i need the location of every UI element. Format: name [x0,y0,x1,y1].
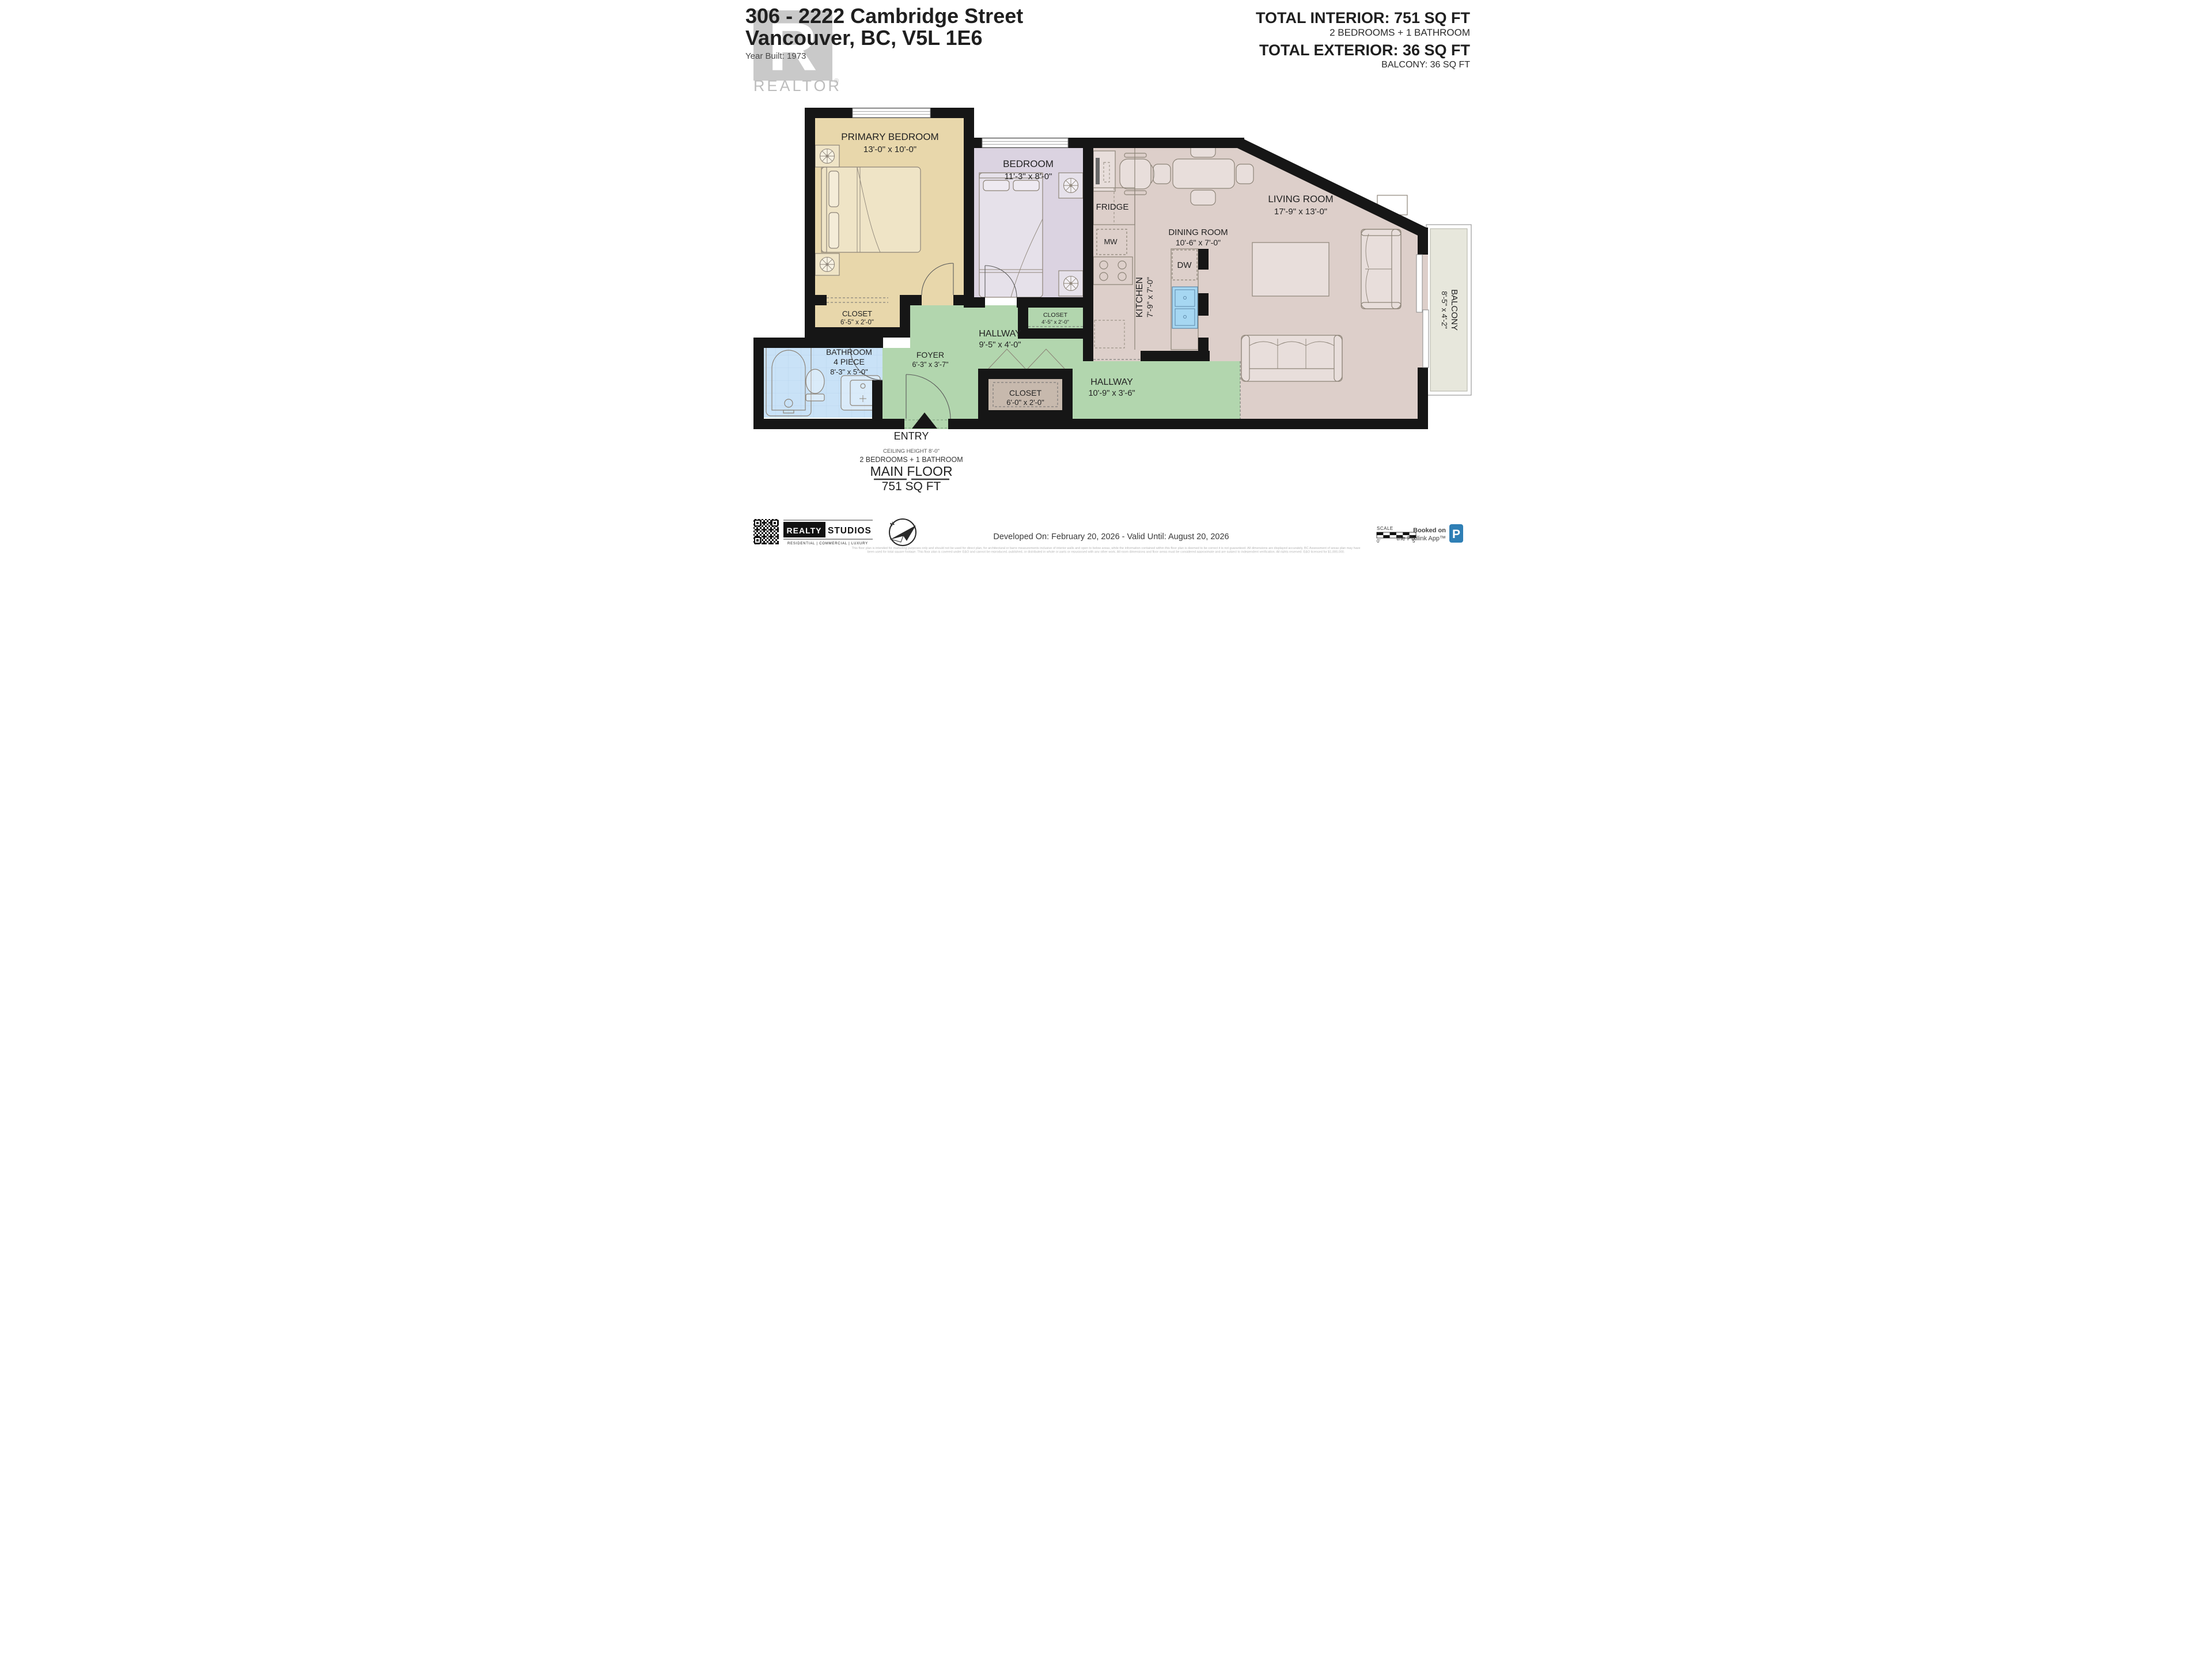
compass-icon: N [889,519,916,546]
primary-bedroom-label: PRIMARY BEDROOM [841,131,938,142]
qr-code [753,519,779,544]
coffee-table [1252,243,1329,296]
logo-tagline: RESIDENTIAL | COMMERCIAL | LUXURY [787,542,868,546]
foyer-area [882,348,978,428]
floor-area: 751 SQ FT [882,480,941,493]
total-exterior: TOTAL EXTERIOR: 36 SQ FT [1259,41,1471,59]
floorplan-canvas: R REALTOR ® 306 - 2222 Cambridge Street … [737,0,1475,553]
bathroom-dims: 8'-3" x 5'-0" [830,368,868,376]
hall-closet-dims: 6'-0" x 2'-0" [1006,398,1044,407]
booked-on-line1: Booked on [1413,527,1446,534]
realty-studios-logo: REALTY STUDIOS RESIDENTIAL | COMMERCIAL … [783,520,873,546]
total-exterior-sub: BALCONY: 36 SQ FT [1381,60,1470,70]
logo-studios: STUDIOS [828,526,872,536]
living-room-label: LIVING ROOM [1268,194,1333,204]
balcony-slider [1416,255,1429,368]
header: 306 - 2222 Cambridge Street Vancouver, B… [745,4,1023,61]
entry-label: ENTRY [894,430,929,442]
bedroom-closet-dims: 4'-5" x 2'-0" [1041,319,1069,325]
hallway-upper-label: HALLWAY [979,329,1021,339]
total-interior-sub: 2 BEDROOMS + 1 BATHROOM [1330,27,1470,38]
hall-closet-label: CLOSET [1009,388,1041,397]
foyer-dims: 6'-3" x 3'-7" [912,361,949,369]
lamp-icon [820,257,835,272]
realtor-logo-text: REALTOR [753,77,842,94]
kitchen-label: KITCHEN [1135,277,1145,317]
ceiling-height: CEILING HEIGHT 8'-0" [883,448,940,454]
lamp-icon [820,149,835,164]
hallway-upper-dims: 9'-5" x 4'-0" [979,340,1021,350]
kitchen-dims: 7'-9" x 7'-0" [1145,277,1154,318]
fridge-label: FRIDGE [1096,202,1129,212]
bathroom-type: 4 PIECE [834,357,865,366]
year-built: Year Built: 1973 [745,51,806,61]
scale-label: SCALE [1377,526,1393,531]
floorplan-page: R REALTOR ® 306 - 2222 Cambridge Street … [737,0,1475,553]
bedroom-label: BEDROOM [1003,158,1054,169]
dishwasher-label: DW [1177,260,1192,270]
hallway-lower-dims: 10'-9" x 3'-6" [1088,389,1135,398]
pixilink-app-letter: P [1452,528,1460,541]
desk [1093,151,1115,191]
bedroom-closet-label: CLOSET [1043,312,1068,319]
primary-closet-dims: 6'-5" x 2'-0" [840,319,874,326]
foyer-label: FOYER [916,350,944,359]
loveseat [1361,229,1401,309]
dining-room-dims: 10'-6" x 7'-0" [1176,238,1221,247]
kitchen-sink [1172,287,1198,328]
scale-start: 0' [1377,539,1380,544]
developed-valid-text: Developed On: February 20, 2026 - Valid … [993,532,1229,541]
address-line1: 306 - 2222 Cambridge Street [745,4,1023,28]
totals: TOTAL INTERIOR: 751 SQ FT 2 BEDROOMS + 1… [1256,9,1471,70]
primary-closet-label: CLOSET [842,309,872,318]
primary-bedroom-dims: 13'-0" x 10'-0" [863,145,916,154]
disclaimer-line1: This floor plan is intended for marketin… [851,547,1360,550]
booked-on-line2: the Pixilink App™ [1396,535,1446,542]
lamp-icon [1064,276,1078,291]
window-primary [853,108,930,118]
toilet [806,369,824,401]
microwave-label: MW [1104,237,1118,246]
footer: REALTY STUDIOS RESIDENTIAL | COMMERCIAL … [753,519,1463,553]
logo-realty: REALTY [787,526,822,535]
lamp-icon [1064,179,1078,193]
balcony-label-group: BALCONY 8'-5" x 4'-2" [1440,289,1459,331]
bathroom-label: BATHROOM [826,347,872,357]
balcony-dims: 8'-5" x 4'-2" [1440,291,1449,329]
floor-name: MAIN FLOOR [870,464,952,479]
bedroom-dims: 11'-3" x 8'-0" [1005,172,1052,181]
hallway-lower-label: HALLWAY [1090,377,1133,387]
primary-bed [821,167,921,252]
address-line2: Vancouver, BC, V5L 1E6 [745,26,983,50]
bed-bath-config: 2 BEDROOMS + 1 BATHROOM [859,456,963,464]
window-bedroom [982,138,1068,147]
disclaimer-line2: been used for total square footage. This… [868,551,1345,554]
dining-room-label: DINING ROOM [1168,228,1228,237]
total-interior: TOTAL INTERIOR: 751 SQ FT [1256,9,1471,26]
balcony-label: BALCONY [1449,289,1459,331]
living-room-dims: 17'-9" x 13'-0" [1274,207,1327,217]
registered-mark: ® [834,78,839,85]
sofa [1241,335,1342,381]
